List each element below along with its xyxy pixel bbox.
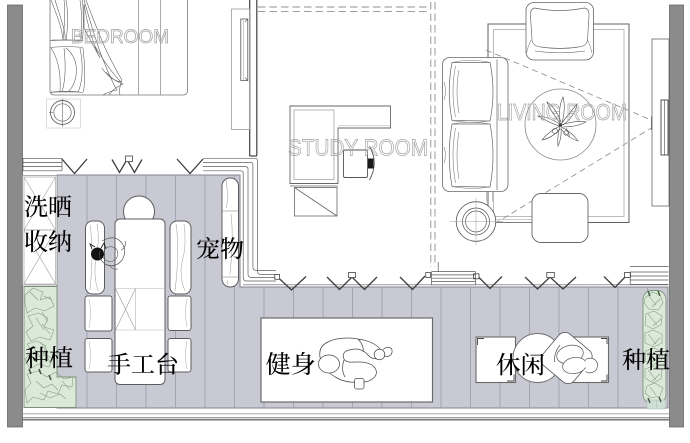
svg-text:BEDROOM: BEDROOM (71, 27, 169, 48)
svg-text:STUDY ROOM: STUDY ROOM (288, 135, 428, 161)
svg-text:LIVING ROOM: LIVING ROOM (497, 99, 627, 125)
